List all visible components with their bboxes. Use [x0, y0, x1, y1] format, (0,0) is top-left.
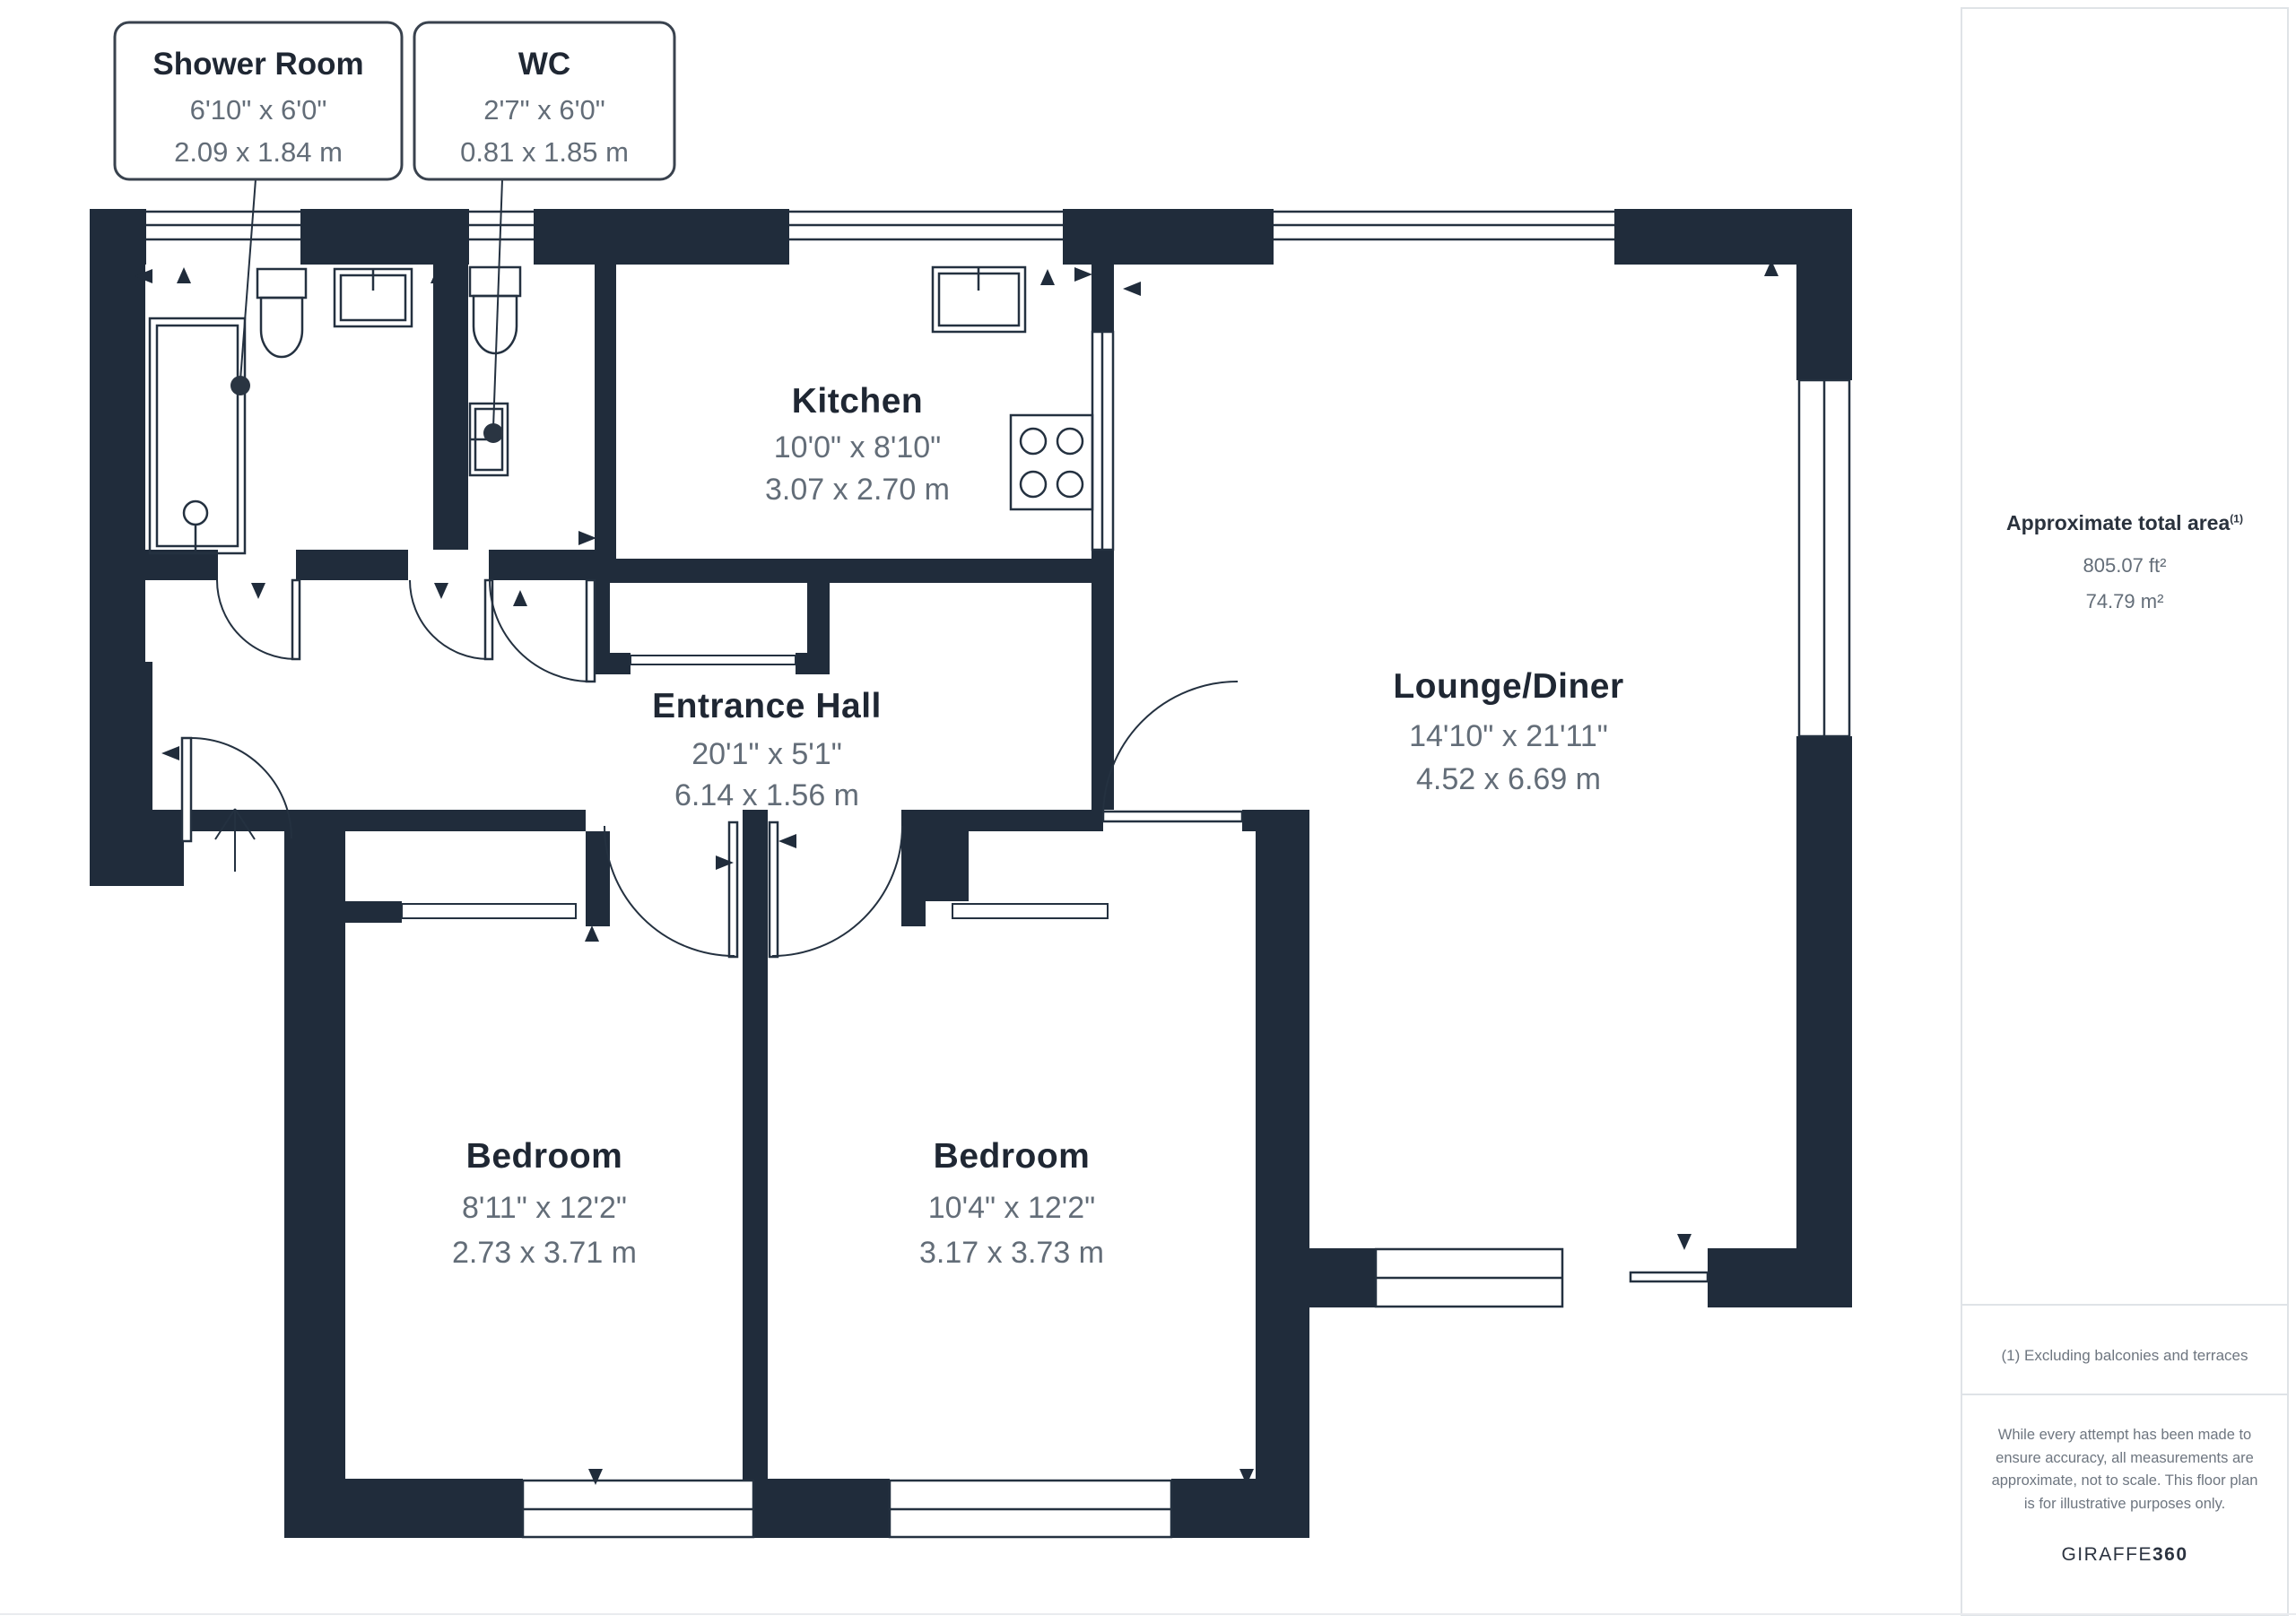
callout-metric: 2.09 x 1.84 m: [174, 136, 343, 168]
room-metric: 4.52 x 6.69 m: [1416, 762, 1601, 796]
brand-name: GIRAFFE: [2061, 1544, 2152, 1565]
wall-segment: [300, 209, 469, 265]
wall-segment: [595, 265, 616, 559]
window: [523, 1480, 753, 1538]
wall-segment: [1708, 1248, 1852, 1307]
wall-segment: [344, 901, 402, 923]
wall-segment: [90, 662, 152, 814]
callout-title: Shower Room: [152, 47, 363, 82]
view-marker: [578, 531, 596, 545]
wall-segment: [433, 265, 468, 550]
disclaimer: While every attempt has been made to ens…: [1987, 1424, 2262, 1515]
total-area-m: 74.79 m²: [1962, 590, 2287, 613]
wall-segment: [534, 209, 789, 265]
wall-segment: [926, 810, 1103, 831]
door-leaf: [1103, 812, 1242, 821]
wardrobe-doors: [402, 904, 576, 918]
room-label-bedroom-1: Bedroom 8'11" x 12'2" 2.73 x 3.71 m: [452, 1137, 637, 1270]
basin: [335, 269, 412, 326]
wall-segment: [595, 653, 631, 674]
divider: [1962, 1304, 2287, 1306]
room-name: Entrance Hall: [652, 687, 882, 725]
wall-segment: [1256, 810, 1309, 1538]
room-label-kitchen: Kitchen 10'0" x 8'10" 3.07 x 2.70 m: [765, 382, 950, 507]
wall-segment: [1171, 1479, 1309, 1538]
windows: [146, 209, 1852, 1538]
wall-segment: [90, 810, 184, 886]
view-marker: [585, 925, 599, 942]
room-metric: 3.17 x 3.73 m: [919, 1236, 1104, 1270]
exterior-walls: [90, 209, 1852, 1538]
divider: [1962, 1394, 2287, 1395]
window: [1796, 380, 1852, 736]
callout-metric: 0.81 x 1.85 m: [460, 136, 629, 168]
wall-segment: [1796, 265, 1852, 380]
door-arc: [604, 826, 735, 956]
room-metric: 3.07 x 2.70 m: [765, 473, 950, 507]
wall-segment: [284, 1479, 523, 1538]
view-marker: [778, 834, 796, 848]
shower-tray: [150, 318, 245, 553]
view-marker: [434, 583, 448, 599]
view-marker: [1074, 267, 1092, 282]
window: [789, 209, 1063, 265]
door-leaf: [729, 822, 737, 957]
room-label-entrance-hall: Entrance Hall 20'1" x 5'1" 6.14 x 1.56 m: [652, 687, 882, 812]
glazed-partition: [1091, 332, 1114, 550]
door-leaf: [485, 580, 492, 659]
giraffe360-logo: GIRAFFE360: [1962, 1544, 2287, 1566]
hob: [1011, 415, 1092, 509]
room-name: Kitchen: [792, 382, 924, 421]
sliding-door-leaf: [1631, 1272, 1708, 1281]
room-name: Bedroom: [466, 1137, 623, 1176]
wall-segment: [1309, 1248, 1376, 1307]
wall-segment: [296, 550, 408, 580]
kitchen-sink: [933, 267, 1025, 332]
door-arc: [490, 580, 591, 682]
wall-segment: [284, 831, 345, 1538]
wall-segment: [743, 810, 768, 1480]
view-marker: [1123, 282, 1141, 296]
page-bottom-border: [0, 1613, 2296, 1615]
room-name: Bedroom: [934, 1137, 1091, 1176]
wall-segment: [1614, 209, 1852, 265]
wall-segment: [1063, 209, 1274, 265]
callout-title: WC: [518, 47, 570, 82]
room-metric: 6.14 x 1.56 m: [674, 778, 859, 812]
total-area-ft: 805.07 ft²: [1962, 554, 2287, 578]
view-marker: [251, 583, 265, 599]
room-imperial: 20'1" x 5'1": [691, 737, 842, 771]
view-marker: [513, 590, 527, 606]
window: [890, 1480, 1171, 1538]
callout-imperial: 6'10" x 6'0": [190, 94, 327, 126]
cupboard-doors: [631, 656, 796, 664]
room-imperial: 10'4" x 12'2": [928, 1191, 1095, 1225]
fixtures: [150, 267, 1092, 553]
window: [146, 209, 300, 265]
toilet: [257, 269, 306, 357]
view-marker: [1040, 269, 1055, 285]
wall-segment: [1796, 736, 1852, 1307]
room-label-lounge-diner: Lounge/Diner 14'10" x 21'11" 4.52 x 6.69…: [1393, 667, 1623, 796]
callout-imperial: 2'7" x 6'0": [483, 94, 605, 126]
leader-dot: [230, 376, 250, 395]
door-leaf: [292, 580, 300, 659]
room-metric: 2.73 x 3.71 m: [452, 1236, 637, 1270]
door-arc: [1103, 682, 1238, 816]
room-label-bedroom-2: Bedroom 10'4" x 12'2" 3.17 x 3.73 m: [919, 1137, 1104, 1270]
leader-dot: [483, 423, 503, 443]
footnote: (1) Excluding balconies and terraces: [1971, 1347, 2278, 1365]
view-marker: [161, 746, 179, 760]
floorplan-drawing: Shower Room 6'10" x 6'0" 2.09 x 1.84 m W…: [0, 0, 2296, 1624]
view-marker: [177, 267, 191, 283]
entrance-door-leaf: [182, 738, 191, 841]
wall-segment: [595, 559, 1108, 583]
wall-segment: [1091, 265, 1114, 332]
room-imperial: 10'0" x 8'10": [774, 430, 941, 465]
room-imperial: 14'10" x 21'11": [1409, 719, 1608, 753]
wall-segment: [489, 550, 595, 580]
room-imperial: 8'11" x 12'2": [462, 1191, 627, 1225]
wall-segment: [796, 653, 830, 674]
footnote-marker: (1): [2230, 512, 2243, 525]
floorplan-page: Shower Room 6'10" x 6'0" 2.09 x 1.84 m W…: [0, 0, 2296, 1624]
window: [1376, 1248, 1562, 1307]
room-name: Lounge/Diner: [1393, 667, 1623, 706]
door-arc: [410, 580, 489, 659]
wall-segment: [753, 1479, 890, 1538]
door-leaf: [587, 580, 595, 682]
wall-segment: [807, 583, 830, 653]
total-area-title: Approximate total area(1): [1962, 511, 2287, 535]
window: [1274, 209, 1614, 265]
door-leaf: [770, 822, 778, 957]
info-sidebar: Approximate total area(1) 805.07 ft² 74.…: [1961, 7, 2289, 1616]
toilet: [470, 267, 520, 353]
total-area-title-text: Approximate total area: [2006, 511, 2230, 534]
view-marker: [1677, 1234, 1692, 1250]
wardrobe-doors: [952, 904, 1108, 918]
wall-segment: [90, 209, 145, 738]
wall-segment: [1242, 810, 1256, 831]
brand-suffix: 360: [2152, 1544, 2188, 1565]
